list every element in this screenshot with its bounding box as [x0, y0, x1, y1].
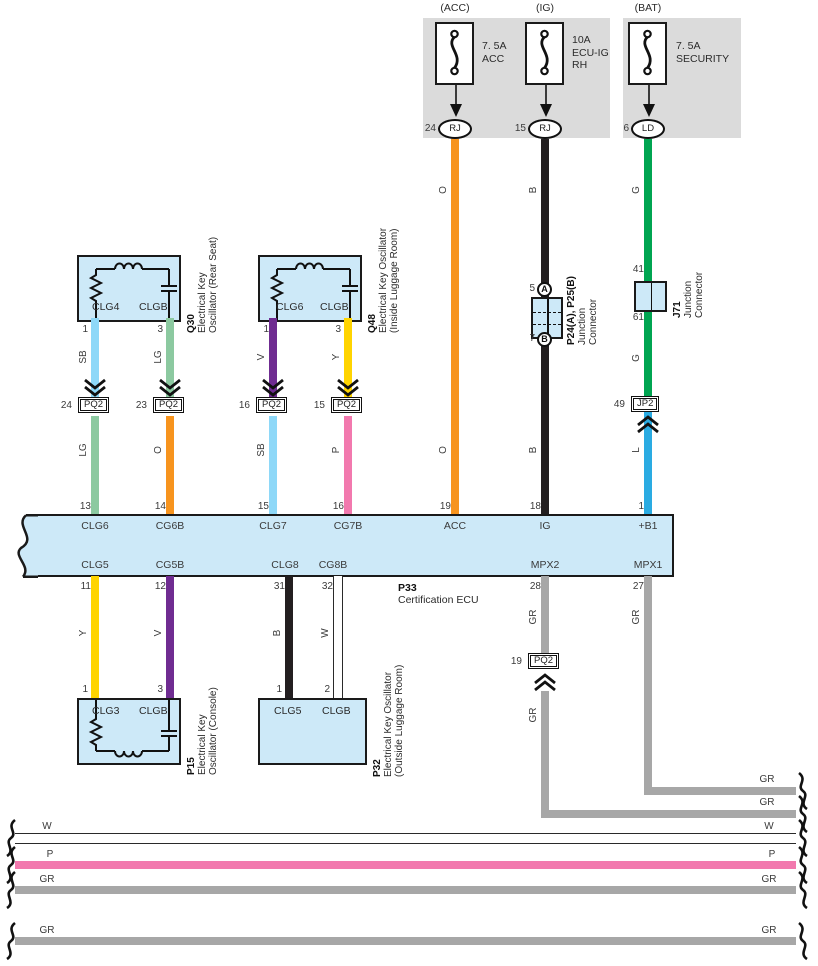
inline-connector-jp2: JP2: [631, 396, 659, 412]
wire-code-label: GR: [529, 602, 539, 632]
wire-code-label: W: [30, 821, 64, 832]
pin-number: 12: [142, 581, 166, 592]
grid-line: [547, 299, 549, 337]
wire-cg8b-white: [333, 576, 343, 698]
connector-oval: RJ: [528, 119, 562, 139]
pin-number: 3: [317, 324, 341, 335]
terminal-label: CLGB: [139, 705, 168, 717]
wire-code-label: O: [439, 435, 449, 465]
wire-code-label: P: [755, 849, 789, 860]
pin-number: 15: [245, 501, 269, 512]
wire-code-label: Y: [332, 342, 342, 372]
pin-number: 16: [226, 400, 250, 411]
ecu-terminal: CG5B: [153, 559, 187, 571]
pin-number: 5: [511, 283, 535, 294]
fuse-box-bat: [628, 22, 667, 85]
wire-code-label: GR: [30, 925, 64, 936]
pin-number: 2: [306, 684, 330, 695]
wire-code-label: G: [632, 343, 642, 373]
wire-mpx1: [644, 576, 652, 794]
ecu-terminal: CG6B: [153, 520, 187, 532]
pin-number: 6: [605, 123, 629, 134]
pin-number: 3: [139, 324, 163, 335]
ecu-band-wavy-edge: [12, 514, 38, 578]
wire-code-label: O: [439, 175, 449, 205]
pin-number: 28: [517, 581, 541, 592]
bus-wire-gr1: [15, 886, 796, 894]
ecu-terminal: ACC: [438, 520, 472, 532]
chevron-down-icon: [262, 379, 284, 396]
wiring-diagram: O O B B G G L (ACC) 7. 5AACC RJ 24 (IG) …: [0, 0, 818, 966]
wire-code-label: B: [273, 618, 283, 648]
wire-code-label: W: [321, 618, 331, 648]
wire-mpx2-lower: [541, 691, 549, 818]
ecu-terminal: IG: [528, 520, 562, 532]
pin-number: 19: [427, 501, 451, 512]
wire-code-label: GR: [30, 874, 64, 885]
wire-code-label: G: [632, 175, 642, 205]
fuse-system-label: (BAT): [616, 2, 680, 14]
fuse-system-label: (IG): [513, 2, 577, 14]
wire-mpx2-upper: [541, 576, 549, 655]
ecu-terminal: CG8B: [316, 559, 350, 571]
fuse-rating: 7. 5ASECURITY: [676, 40, 729, 65]
terminal-label: CLG3: [92, 705, 119, 717]
wire-acc: [451, 139, 459, 517]
pin-number: 13: [67, 501, 91, 512]
pin-number: 49: [601, 399, 625, 410]
wire-code-label: SB: [257, 435, 267, 465]
component-label-p24-p25: P24(A), P25(B) Junction Connector: [566, 276, 599, 345]
component-label-q30: Q30 Electrical Key Oscillator (Rear Seat…: [186, 237, 219, 333]
wire-code-label: LG: [154, 342, 164, 372]
wire-cg7b: [344, 416, 352, 517]
component-label-p15: P15 Electrical Key Oscillator (Console): [186, 687, 219, 775]
bus-wire-gr2: [15, 937, 796, 945]
pin-number: 23: [123, 400, 147, 411]
wire-code-label: GR: [752, 925, 786, 936]
wire-code-label: O: [154, 435, 164, 465]
wire-break-icon: [4, 922, 18, 960]
fuse-rating: 7. 5AACC: [482, 40, 507, 65]
pin-number: 7: [511, 333, 535, 344]
pin-number: 27: [620, 581, 644, 592]
wire-code-label: SB: [79, 342, 89, 372]
ecu-terminal: +B1: [631, 520, 665, 532]
grid-line: [651, 283, 653, 310]
ecu-terminal: CG7B: [331, 520, 365, 532]
bus-wire-w: [15, 833, 796, 844]
wire-code-label: W: [752, 821, 786, 832]
wire-cg6b: [166, 416, 174, 517]
terminal-label: CLGB: [320, 301, 349, 313]
wire-code-label: GR: [752, 874, 786, 885]
pin-number: 32: [309, 581, 333, 592]
terminal-label: CLGB: [322, 705, 351, 717]
wire-code-label: GR: [750, 774, 784, 785]
wire-clg8: [285, 576, 293, 698]
ecu-terminal: CLG5: [78, 559, 112, 571]
pin-number: 15: [301, 400, 325, 411]
ecu-terminal: CLG8: [268, 559, 302, 571]
chevron-down-icon: [84, 379, 106, 396]
inline-connector-pq2: PQ2: [153, 397, 184, 413]
pin-number: 1: [258, 684, 282, 695]
wire-clg6: [91, 416, 99, 517]
fuse-icon: [527, 24, 562, 83]
wire-code-label: P: [332, 435, 342, 465]
wire-code-label: B: [529, 435, 539, 465]
wire-code-label: B: [529, 175, 539, 205]
inline-connector-pq2: PQ2: [331, 397, 362, 413]
fuse-box-acc: [435, 22, 474, 85]
ecu-terminal: CLG7: [256, 520, 290, 532]
fuse-box-ig: [525, 22, 564, 85]
terminal-label: CLG6: [276, 301, 303, 313]
terminal-label: CLGB: [139, 301, 168, 313]
wire-bat: [644, 139, 652, 398]
pin-number: 16: [320, 501, 344, 512]
component-label-p32: P32 Electrical Key Oscillator (Outside L…: [372, 665, 405, 777]
ecu-terminal: MPX2: [528, 559, 562, 571]
wire-code-label: GR: [750, 797, 784, 808]
terminal-label: CLG5: [274, 705, 301, 717]
pin-number: 1: [245, 324, 269, 335]
pin-number: 61: [620, 312, 644, 323]
wire-mpx2-horizontal: [541, 810, 796, 818]
wire-break-icon: [796, 871, 810, 909]
component-label-q48: Q48 Electrical Key Oscillator (Inside Lu…: [367, 228, 400, 333]
wire-code-label: GR: [529, 700, 539, 730]
wire-break-icon: [4, 871, 18, 909]
pin-number: 15: [502, 123, 526, 134]
chevron-up-icon: [637, 416, 659, 433]
tap-circle: A: [537, 282, 552, 297]
pin-number: 18: [517, 501, 541, 512]
pin-number: 1: [620, 501, 644, 512]
pin-number: 3: [139, 684, 163, 695]
terminal-label: CLG4: [92, 301, 119, 313]
inline-connector-pq2: PQ2: [256, 397, 287, 413]
inline-connector-pq2: PQ2: [528, 653, 559, 669]
pin-number: 41: [620, 264, 644, 275]
connector-oval: RJ: [438, 119, 472, 139]
wire-cg5b: [166, 576, 174, 698]
fuse-icon: [437, 24, 472, 83]
pin-number: 31: [261, 581, 285, 592]
arrow-down-icon: [449, 85, 463, 119]
component-label-j71: J71 Junction Connector: [672, 272, 705, 318]
connector-oval: LD: [631, 119, 665, 139]
wire-code-label: L: [632, 435, 642, 465]
wire-code-label: GR: [632, 602, 642, 632]
wire-clg5: [91, 576, 99, 698]
fuse-icon: [630, 24, 665, 83]
bus-wire-p: [15, 861, 796, 869]
wire-code-label: V: [257, 342, 267, 372]
pin-number: 11: [67, 581, 91, 592]
pin-number: 24: [48, 400, 72, 411]
pin-number: 19: [498, 656, 522, 667]
pin-number: 1: [64, 684, 88, 695]
wire-code-label: Y: [79, 618, 89, 648]
wire-code-label: P: [33, 849, 67, 860]
wire-code-label: V: [154, 618, 164, 648]
wire-mpx1-horizontal: [644, 787, 796, 795]
junction-connector-j71: [634, 281, 667, 312]
chevron-up-icon: [534, 674, 556, 691]
ecu-terminal: CLG6: [78, 520, 112, 532]
component-label-p33: P33 Certification ECU: [398, 582, 479, 606]
arrow-down-icon: [642, 85, 656, 119]
wire-break-icon: [796, 922, 810, 960]
fuse-system-label: (ACC): [423, 2, 487, 14]
pin-number: 1: [64, 324, 88, 335]
wire-clg7: [269, 416, 277, 517]
pin-number: 24: [412, 123, 436, 134]
inline-connector-pq2: PQ2: [78, 397, 109, 413]
ecu-terminal: MPX1: [631, 559, 665, 571]
arrow-down-icon: [539, 85, 553, 119]
fuse-rating: 10AECU-IGRH: [572, 34, 609, 72]
pin-number: 14: [142, 501, 166, 512]
chevron-down-icon: [159, 379, 181, 396]
grid-line: [533, 312, 561, 313]
tap-circle: B: [537, 332, 552, 347]
chevron-down-icon: [337, 379, 359, 396]
wire-code-label: LG: [79, 435, 89, 465]
grid-line: [533, 324, 561, 325]
